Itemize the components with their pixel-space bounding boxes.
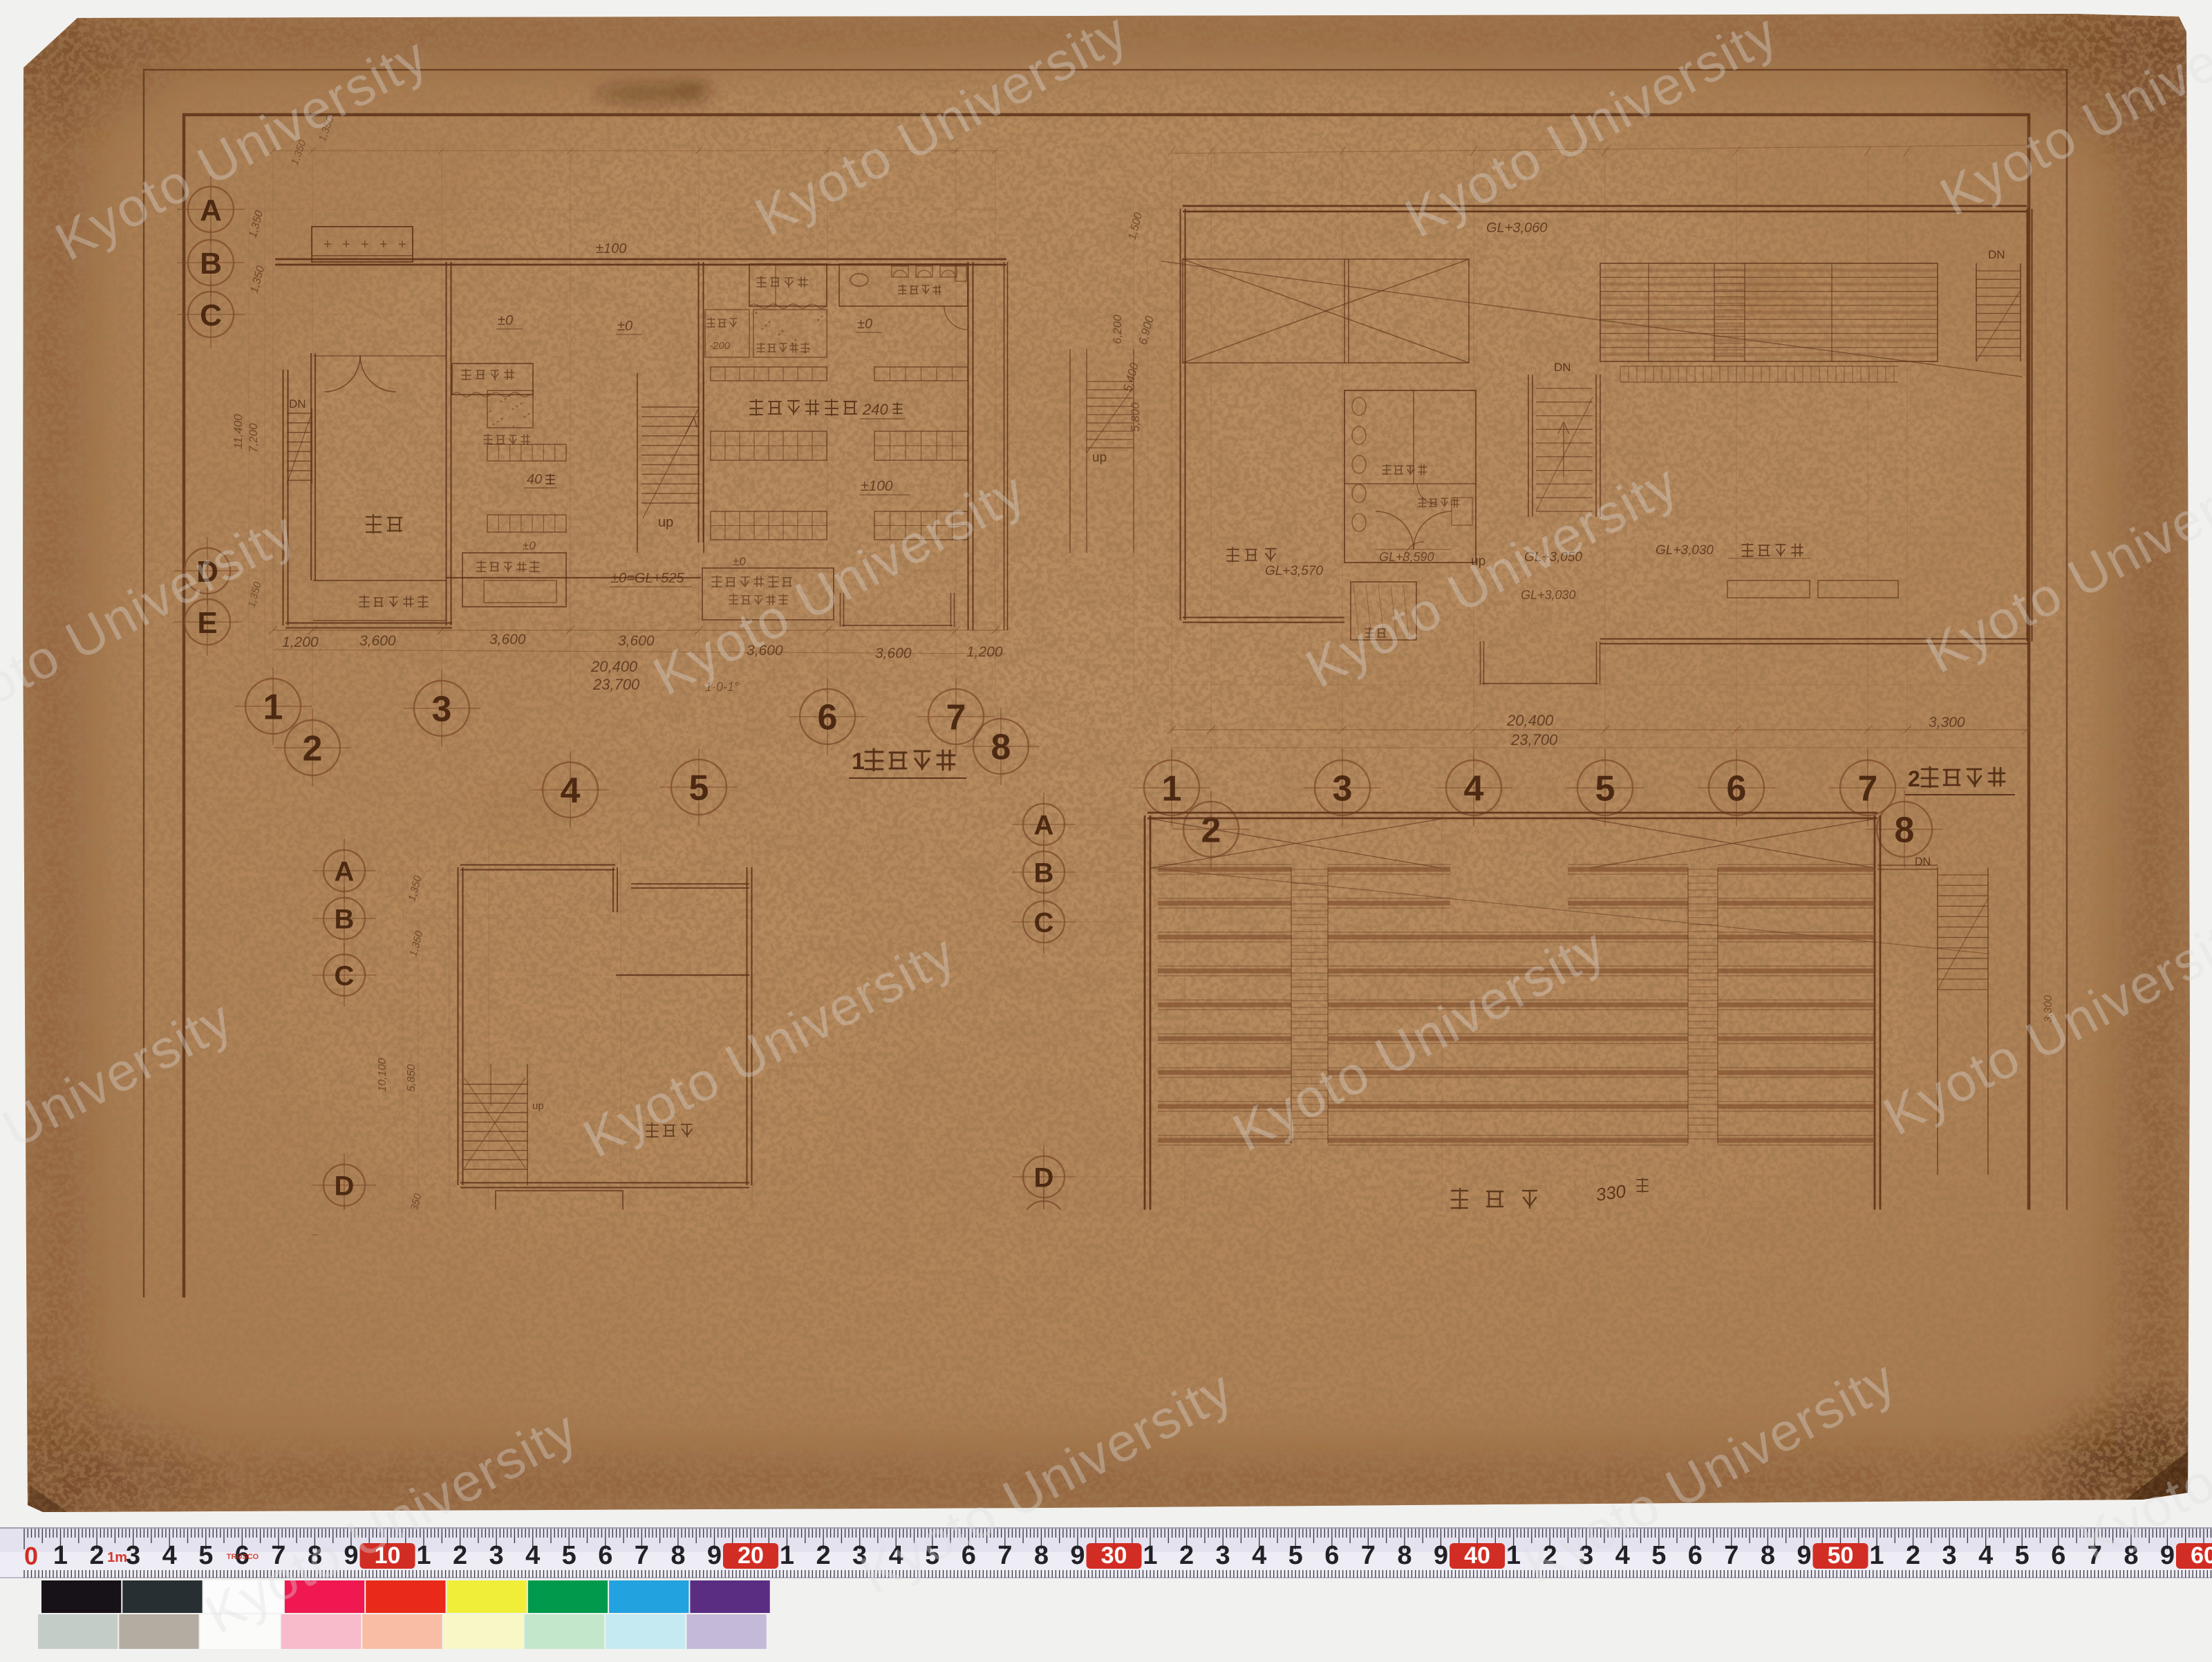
svg-text:up: up bbox=[532, 1100, 544, 1112]
svg-text:±0=GL+525: ±0=GL+525 bbox=[611, 571, 684, 586]
svg-text:DN: DN bbox=[1554, 361, 1571, 374]
svg-text:C: C bbox=[1034, 907, 1054, 938]
svg-text:C: C bbox=[335, 961, 355, 991]
svg-text:10,100: 10,100 bbox=[377, 1058, 388, 1092]
svg-text:): ) bbox=[359, 1397, 364, 1412]
svg-text:8: 8 bbox=[1397, 1541, 1412, 1570]
svg-text:30: 30 bbox=[1101, 1542, 1127, 1569]
svg-text:1: 1 bbox=[780, 1541, 794, 1570]
svg-text:4: 4 bbox=[1252, 1541, 1266, 1570]
svg-text:430: 430 bbox=[748, 1399, 765, 1410]
svg-text:3,600: 3,600 bbox=[536, 1280, 569, 1294]
svg-text:3: 3 bbox=[432, 690, 452, 730]
svg-text:1: 1 bbox=[416, 1541, 431, 1570]
svg-text:7: 7 bbox=[1361, 1541, 1376, 1570]
svg-text:330: 330 bbox=[1595, 1180, 1628, 1205]
svg-text:up: up bbox=[658, 515, 673, 530]
svg-text:6: 6 bbox=[598, 1541, 612, 1570]
svg-text:7: 7 bbox=[1858, 769, 1878, 809]
svg-text:23,700: 23,700 bbox=[1503, 1265, 1548, 1281]
svg-text:1,200: 1,200 bbox=[1839, 1229, 1872, 1243]
svg-text:7: 7 bbox=[997, 1541, 1012, 1570]
svg-text:A: A bbox=[1034, 810, 1054, 840]
svg-text:1: 1 bbox=[852, 748, 865, 775]
svg-text:±100: ±100 bbox=[861, 478, 893, 494]
svg-text:+: + bbox=[398, 237, 406, 252]
svg-text:3,600: 3,600 bbox=[1749, 1229, 1782, 1243]
svg-text:20,400: 20,400 bbox=[590, 658, 638, 675]
svg-text:D: D bbox=[1034, 1162, 1054, 1193]
svg-text:±0: ±0 bbox=[617, 319, 632, 334]
svg-text:20,400: 20,400 bbox=[1499, 1247, 1545, 1263]
svg-text:E: E bbox=[197, 606, 217, 640]
svg-text:GL+3,590: GL+3,590 bbox=[1379, 550, 1434, 564]
svg-text:A: A bbox=[335, 856, 355, 887]
svg-text:4: 4 bbox=[1464, 769, 1484, 809]
svg-text:1,200: 1,200 bbox=[1149, 1229, 1182, 1243]
svg-text:+: + bbox=[342, 237, 350, 252]
svg-text:8: 8 bbox=[991, 728, 1011, 768]
svg-text:±0: ±0 bbox=[857, 317, 872, 332]
svg-text:2: 2 bbox=[90, 1541, 104, 1570]
svg-text:1: 1 bbox=[1143, 1541, 1157, 1570]
svg-text:3,600: 3,600 bbox=[1488, 1229, 1521, 1243]
svg-text:8: 8 bbox=[671, 1541, 685, 1570]
svg-text:3,600: 3,600 bbox=[489, 632, 526, 648]
svg-text:±0: ±0 bbox=[498, 313, 513, 328]
svg-text:2: 2 bbox=[1906, 1541, 1920, 1570]
svg-text:(: ( bbox=[310, 1397, 315, 1412]
svg-text:23,700: 23,700 bbox=[1510, 731, 1558, 748]
svg-text:7: 7 bbox=[1724, 1541, 1738, 1570]
svg-text:3: 3 bbox=[1942, 1541, 1957, 1570]
svg-text:5: 5 bbox=[1288, 1541, 1303, 1570]
svg-text:5: 5 bbox=[689, 768, 709, 809]
svg-text:6: 6 bbox=[1727, 769, 1747, 809]
svg-text:GL+3,030: GL+3,030 bbox=[1656, 543, 1714, 558]
svg-text:1: 1 bbox=[263, 688, 283, 728]
svg-text:5,850: 5,850 bbox=[406, 1064, 418, 1092]
svg-text:DN: DN bbox=[1988, 248, 2005, 261]
svg-text:±100: ±100 bbox=[596, 241, 626, 256]
svg-text:9: 9 bbox=[1434, 1541, 1448, 1570]
svg-text:5,800: 5,800 bbox=[1129, 402, 1142, 432]
svg-text:3: 3 bbox=[1216, 1541, 1230, 1570]
svg-text:3: 3 bbox=[126, 1541, 140, 1570]
svg-text:3,300: 3,300 bbox=[1918, 1248, 1951, 1263]
svg-text:±0: ±0 bbox=[523, 539, 536, 552]
svg-text:1: 1 bbox=[440, 1279, 460, 1319]
svg-text:+: + bbox=[379, 237, 388, 252]
svg-text:up: up bbox=[1092, 451, 1107, 465]
svg-text:1: 1 bbox=[53, 1541, 68, 1570]
svg-text:3: 3 bbox=[1302, 1283, 1322, 1323]
svg-text:2: 2 bbox=[1908, 766, 1920, 791]
svg-text:4: 4 bbox=[738, 1279, 758, 1319]
svg-text:DN: DN bbox=[1915, 856, 1931, 868]
svg-text:1:100: 1:100 bbox=[1561, 1361, 1628, 1390]
svg-text:-200: -200 bbox=[709, 340, 731, 352]
svg-text:9: 9 bbox=[1797, 1541, 1811, 1570]
svg-text:8: 8 bbox=[1034, 1541, 1049, 1570]
svg-text:3,600: 3,600 bbox=[674, 1280, 707, 1294]
svg-text:7: 7 bbox=[635, 1541, 649, 1570]
svg-text:40: 40 bbox=[1464, 1542, 1490, 1569]
svg-text:20,400: 20,400 bbox=[1506, 712, 1554, 729]
svg-text:2: 2 bbox=[1175, 1318, 1195, 1358]
svg-text:DN: DN bbox=[289, 397, 306, 410]
svg-text:9: 9 bbox=[1070, 1541, 1085, 1570]
svg-text:6: 6 bbox=[1694, 1283, 1714, 1323]
svg-text:2: 2 bbox=[816, 1541, 831, 1570]
svg-text:0: 0 bbox=[24, 1542, 38, 1570]
svg-text:2: 2 bbox=[479, 1317, 499, 1357]
svg-text:E: E bbox=[335, 1220, 354, 1251]
svg-text:2: 2 bbox=[453, 1541, 467, 1570]
svg-text:±0: ±0 bbox=[733, 555, 746, 568]
svg-text:5: 5 bbox=[562, 1541, 577, 1570]
svg-text:4: 4 bbox=[162, 1541, 177, 1570]
svg-text:20: 20 bbox=[738, 1542, 764, 1569]
svg-text:3,600: 3,600 bbox=[1356, 1229, 1389, 1243]
svg-text:8: 8 bbox=[1761, 1541, 1775, 1570]
svg-text:240: 240 bbox=[862, 401, 888, 418]
svg-text:5: 5 bbox=[1651, 1541, 1666, 1570]
svg-text:300: 300 bbox=[1983, 1229, 2005, 1243]
svg-text:+: + bbox=[324, 237, 332, 252]
svg-text:8: 8 bbox=[1895, 811, 1915, 851]
svg-text:1,200: 1,200 bbox=[458, 1283, 491, 1297]
svg-text:4: 4 bbox=[1978, 1541, 1993, 1570]
svg-text:5: 5 bbox=[1565, 1283, 1585, 1323]
svg-text:E: E bbox=[1035, 1207, 1053, 1238]
svg-text:6: 6 bbox=[1688, 1541, 1703, 1570]
svg-text:B: B bbox=[1034, 858, 1054, 888]
svg-text:3,600: 3,600 bbox=[618, 633, 655, 649]
svg-text:9: 9 bbox=[707, 1541, 722, 1570]
svg-text:C: C bbox=[200, 299, 222, 332]
svg-text:1m: 1m bbox=[107, 1550, 127, 1565]
svg-text:3,600: 3,600 bbox=[875, 645, 912, 661]
svg-text:9: 9 bbox=[2160, 1541, 2175, 1570]
svg-text:3,600: 3,600 bbox=[1618, 1229, 1651, 1243]
svg-text:075-761-0003: 075-761-0003 bbox=[462, 1406, 526, 1418]
svg-text:1: 1 bbox=[1162, 769, 1182, 809]
svg-text:6: 6 bbox=[2051, 1541, 2065, 1570]
svg-text:23,700: 23,700 bbox=[592, 676, 640, 693]
svg-text:1,200: 1,200 bbox=[282, 634, 319, 650]
svg-text:4: 4 bbox=[736, 1361, 742, 1372]
svg-text:60: 60 bbox=[2191, 1542, 2212, 1569]
svg-text:3,000: 3,000 bbox=[1916, 1229, 1949, 1243]
svg-text:4: 4 bbox=[561, 771, 581, 811]
svg-text:6,200: 6,200 bbox=[1111, 314, 1124, 344]
svg-text:2: 2 bbox=[1179, 1541, 1194, 1570]
svg-text:+: + bbox=[361, 237, 369, 252]
svg-text:40: 40 bbox=[527, 472, 542, 487]
svg-text:5: 5 bbox=[2015, 1541, 2030, 1570]
svg-text:D: D bbox=[335, 1171, 355, 1201]
svg-text:3: 3 bbox=[611, 1279, 631, 1319]
svg-text:GL+3,060: GL+3,060 bbox=[1486, 220, 1547, 236]
svg-text:3: 3 bbox=[489, 1541, 504, 1570]
svg-text:3,300: 3,300 bbox=[1929, 715, 1965, 730]
svg-text:3,600: 3,600 bbox=[359, 633, 396, 649]
svg-text:5: 5 bbox=[198, 1541, 213, 1570]
svg-text:5: 5 bbox=[1595, 769, 1615, 809]
svg-text:7: 7 bbox=[1824, 1283, 1844, 1323]
svg-text:50: 50 bbox=[1828, 1542, 1854, 1569]
svg-text:3,600: 3,600 bbox=[1227, 1229, 1260, 1243]
svg-text:7: 7 bbox=[946, 698, 966, 738]
svg-text:1: 1 bbox=[715, 1399, 721, 1410]
svg-text:3: 3 bbox=[1333, 769, 1353, 809]
svg-text:1: 1 bbox=[1136, 1283, 1156, 1323]
svg-text:4: 4 bbox=[525, 1541, 540, 1570]
svg-text:4: 4 bbox=[1432, 1283, 1452, 1323]
svg-text:B: B bbox=[335, 904, 355, 934]
svg-text:6: 6 bbox=[818, 698, 838, 738]
svg-text:GL+3,570: GL+3,570 bbox=[1265, 564, 1323, 578]
svg-text:1,200: 1,200 bbox=[966, 644, 1003, 660]
svg-text:1: 1 bbox=[1869, 1541, 1884, 1570]
svg-text:B: B bbox=[200, 247, 222, 281]
svg-text:2: 2 bbox=[303, 729, 323, 769]
svg-text:6: 6 bbox=[1324, 1541, 1339, 1570]
svg-text:11,400: 11,400 bbox=[232, 414, 245, 449]
